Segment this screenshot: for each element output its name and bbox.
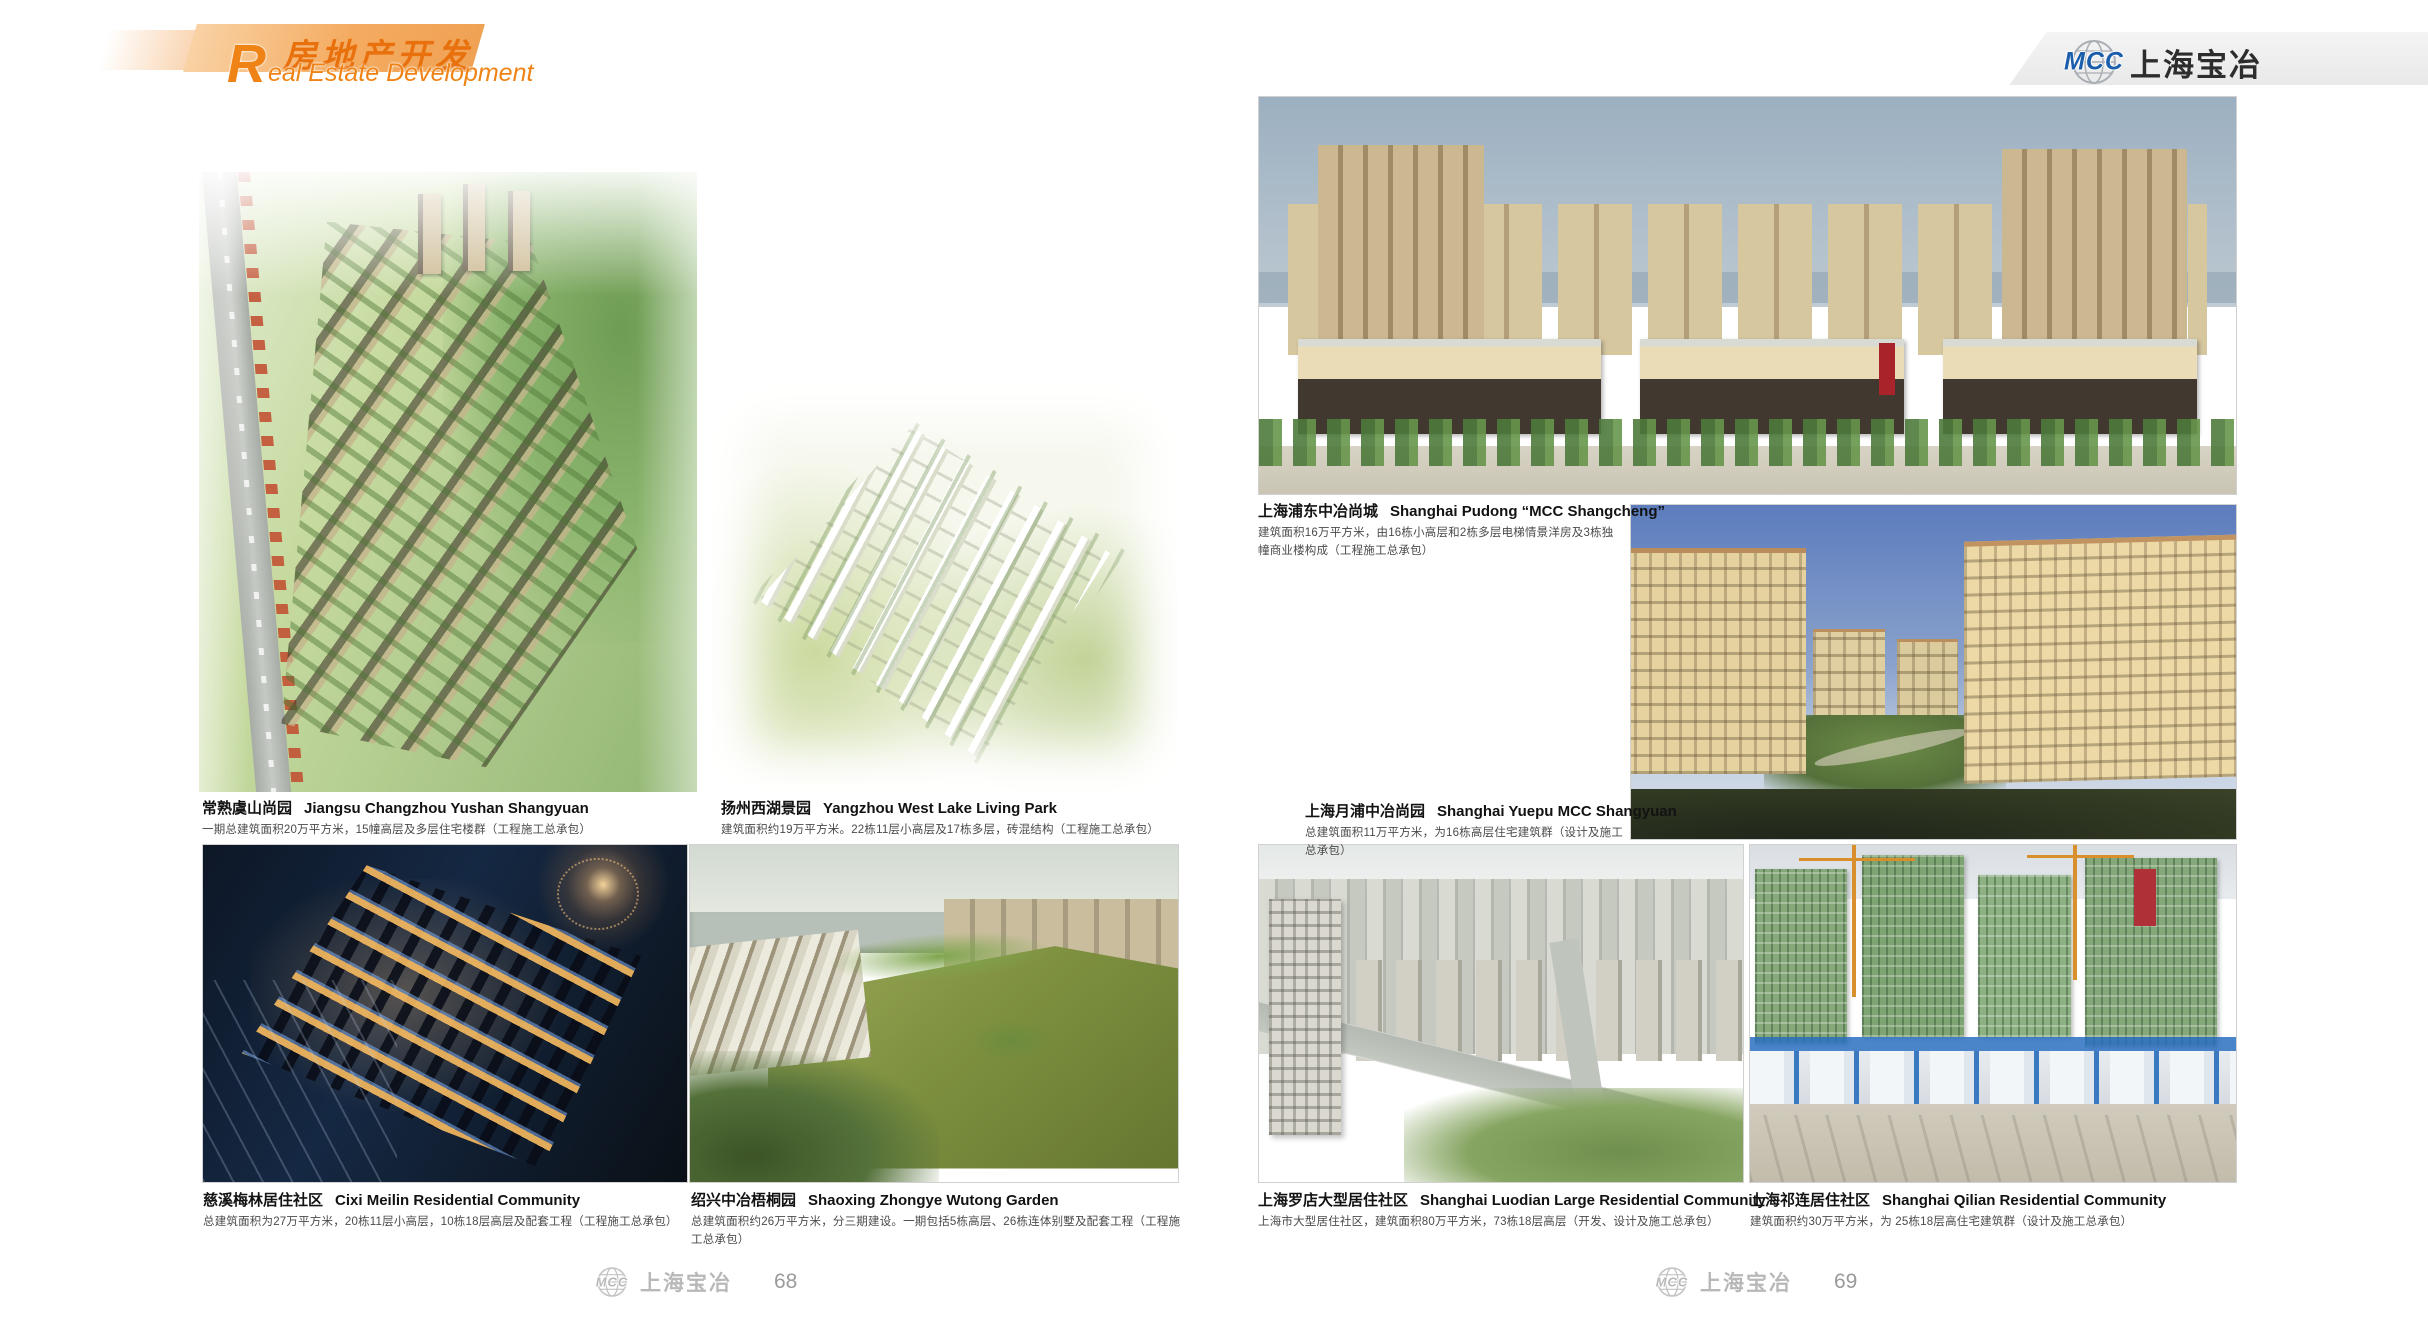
- footer-left: MCC 上海宝冶 68: [596, 1266, 797, 1298]
- photo-wutong-lake: [690, 845, 1178, 1182]
- photo5-tower-right: [2002, 149, 2188, 355]
- caption-title-cn: 上海罗店大型居住社区: [1258, 1192, 1408, 1209]
- brochure-spread: 房地产开发 Real Estate Development MCC 上海宝冶: [0, 0, 2428, 1326]
- caption-desc: 总建筑面积约26万平方米，分三期建设。一期包括5栋高层、26栋连体别墅及配套工程…: [691, 1214, 1183, 1250]
- photo7-greenery: [1404, 1088, 1743, 1182]
- caption-wutong: 绍兴中冶梧桐园Shaoxing Zhongye Wutong Garden 总建…: [691, 1189, 1183, 1250]
- caption-title-en: Shanghai Yuepu MCC Shangyuan: [1437, 803, 1677, 820]
- caption-title-cn: 扬州西湖景园: [721, 800, 811, 817]
- caption-title-en: Shaoxing Zhongye Wutong Garden: [808, 1192, 1059, 1209]
- caption-title-cn: 上海祁连居住社区: [1750, 1192, 1870, 1209]
- caption-title-en: Jiangsu Changzhou Yushan Shangyuan: [304, 800, 589, 817]
- mcc-wordmark: MCC: [2064, 48, 2124, 77]
- photo7-foreground-tower: [1269, 899, 1342, 1135]
- photo8-tower-under-construction: [1755, 869, 1847, 1044]
- photo8-red-banner: [2134, 869, 2156, 926]
- photo8-crane-jib: [1799, 858, 1916, 861]
- photo-yushan-rendering: [199, 172, 697, 792]
- mcc-globe-icon: MCC: [2070, 38, 2118, 86]
- photo3-fireworks-ring: [557, 858, 638, 929]
- caption-westlake: 扬州西湖景园Yangzhou West Lake Living Park 建筑面…: [721, 797, 1191, 840]
- company-name: 上海宝冶: [2130, 40, 2262, 85]
- caption-qilian: 上海祁连居住社区Shanghai Qilian Residential Comm…: [1750, 1189, 2240, 1232]
- caption-title-en: Yangzhou West Lake Living Park: [823, 800, 1057, 817]
- photo8-ground-marks: [1750, 1115, 2236, 1182]
- photo8-tower-under-construction: [1978, 875, 2070, 1037]
- photo-westlake-rendering: [712, 386, 1178, 792]
- photo1-haze: [199, 172, 697, 792]
- photo5-street-trees: [1259, 419, 2236, 467]
- photo-shangcheng: [1259, 97, 2236, 494]
- footer-company: 上海宝冶: [1700, 1267, 1792, 1297]
- caption-luodian: 上海罗店大型居住社区Shanghai Luodian Large Residen…: [1258, 1189, 1758, 1232]
- photo-qilian-construction: [1750, 845, 2236, 1182]
- mcc-wordmark: MCC: [1656, 1275, 1689, 1290]
- photo3-roads: [203, 980, 397, 1182]
- caption-desc: 总建筑面积为27万平方米，20栋11层小高层，10栋18层高层及配套工程（工程施…: [203, 1214, 708, 1232]
- caption-title-cn: 绍兴中冶梧桐园: [691, 1192, 796, 1209]
- brand-logo: MCC 上海宝冶: [2070, 38, 2262, 86]
- photo2-edge-fade: [712, 386, 1178, 792]
- photo8-site-cabins: [1750, 1051, 2236, 1105]
- caption-desc: 建筑面积16万平方米，由16栋小高层和2栋多层电梯情景洋房及3栋独幢商业楼构成（…: [1258, 525, 1618, 561]
- section-title-en: Real Estate Development: [227, 42, 533, 88]
- caption-title-cn: 慈溪梅林居住社区: [203, 1192, 323, 1209]
- mcc-globe-icon: MCC: [1656, 1266, 1688, 1298]
- section-title-en-initial: R: [227, 42, 266, 88]
- photo5-tower-left: [1318, 145, 1484, 355]
- caption-desc: 建筑面积约19万平方米。22栋11层小高层及17栋多层，砖混结构（工程施工总承包…: [721, 822, 1191, 840]
- photo4-foreground-trees: [690, 1051, 939, 1182]
- footer-company: 上海宝冶: [640, 1267, 732, 1297]
- caption-desc: 上海市大型居住社区，建筑面积80万平方米，73栋18层高层（开发、设计及施工总承…: [1258, 1214, 1758, 1232]
- section-title-en-rest: eal Estate Development: [268, 60, 533, 88]
- caption-desc: 一期总建筑面积20万平方米，15幢高层及多层住宅楼群（工程施工总承包）: [202, 822, 702, 840]
- photo-yuepu: [1631, 505, 2236, 839]
- photo8-crane-mast: [2073, 845, 2077, 980]
- photo8-crane-mast: [1852, 845, 1856, 997]
- caption-meilin: 慈溪梅林居住社区Cixi Meilin Residential Communit…: [203, 1189, 708, 1232]
- photo6-foreground-trees: [1631, 789, 2236, 839]
- photo6-right-tower: [1964, 535, 2236, 785]
- photo8-blue-fence: [1750, 1037, 2236, 1050]
- photo5-red-banner: [1879, 343, 1895, 395]
- caption-title-cn: 上海月浦中冶尚园: [1305, 803, 1425, 820]
- photo8-crane-jib: [2027, 855, 2134, 858]
- caption-title-en: Cixi Meilin Residential Community: [335, 1192, 580, 1209]
- caption-yushan: 常熟虞山尚园Jiangsu Changzhou Yushan Shangyuan…: [202, 797, 702, 840]
- caption-desc: 建筑面积约30万平方米，为 25栋18层高住宅建筑群（设计及施工总承包）: [1750, 1214, 2240, 1232]
- mcc-wordmark: MCC: [596, 1275, 629, 1290]
- page-number: 68: [774, 1270, 797, 1294]
- caption-shangcheng: 上海浦东中冶尚城Shanghai Pudong “MCC Shangcheng”…: [1258, 500, 1618, 561]
- photo6-left-tower: [1631, 548, 1806, 773]
- page-number: 69: [1834, 1270, 1857, 1294]
- mcc-globe-icon: MCC: [596, 1266, 628, 1298]
- caption-yuepu: 上海月浦中冶尚园Shanghai Yuepu MCC Shangyuan 总建筑…: [1305, 800, 1630, 861]
- caption-title-en: Shanghai Qilian Residential Community: [1882, 1192, 2166, 1209]
- photo-meilin-night-rendering: [203, 845, 687, 1182]
- photo-luodian: [1259, 845, 1743, 1182]
- caption-title-cn: 常熟虞山尚园: [202, 800, 292, 817]
- footer-right: MCC 上海宝冶 69: [1656, 1266, 1857, 1298]
- caption-title-en: Shanghai Pudong “MCC Shangcheng”: [1390, 503, 1665, 520]
- photo8-tower-under-construction: [1862, 855, 1964, 1037]
- caption-desc: 总建筑面积11万平方米，为16栋高层住宅建筑群（设计及施工总承包）: [1305, 825, 1630, 861]
- photo4-island: [973, 1020, 1051, 1060]
- caption-title-en: Shanghai Luodian Large Residential Commu…: [1420, 1192, 1766, 1209]
- caption-title-cn: 上海浦东中冶尚城: [1258, 503, 1378, 520]
